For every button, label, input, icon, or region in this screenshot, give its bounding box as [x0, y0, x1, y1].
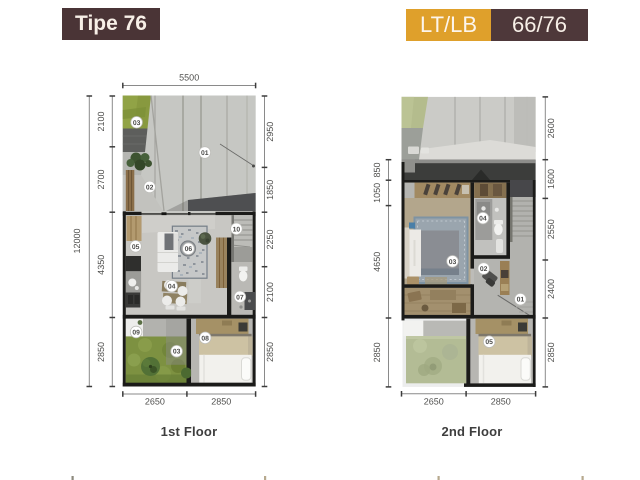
- svg-text:12000: 12000: [72, 228, 82, 253]
- svg-text:03: 03: [133, 120, 141, 127]
- svg-text:01: 01: [517, 297, 525, 304]
- svg-text:2850: 2850: [211, 397, 231, 407]
- svg-text:1600: 1600: [546, 169, 556, 189]
- svg-text:5500: 5500: [179, 73, 199, 83]
- svg-text:1050: 1050: [372, 183, 382, 203]
- svg-text:4650: 4650: [372, 252, 382, 272]
- svg-text:2400: 2400: [546, 279, 556, 299]
- svg-text:2850: 2850: [265, 342, 275, 362]
- svg-text:2650: 2650: [145, 397, 165, 407]
- svg-text:10: 10: [233, 226, 241, 233]
- svg-text:2600: 2600: [546, 118, 556, 138]
- svg-text:850: 850: [372, 162, 382, 177]
- svg-text:4350: 4350: [96, 255, 106, 275]
- svg-text:01: 01: [201, 150, 209, 157]
- svg-text:05: 05: [132, 244, 140, 251]
- svg-text:1850: 1850: [265, 180, 275, 200]
- svg-text:07: 07: [236, 294, 244, 301]
- svg-text:2650: 2650: [424, 396, 444, 406]
- svg-text:05: 05: [485, 339, 493, 346]
- svg-text:2850: 2850: [546, 342, 556, 362]
- svg-text:2850: 2850: [372, 342, 382, 362]
- svg-text:08: 08: [201, 335, 209, 342]
- svg-text:06: 06: [185, 246, 193, 253]
- svg-text:2700: 2700: [96, 169, 106, 189]
- svg-text:03: 03: [173, 349, 181, 356]
- svg-text:2100: 2100: [265, 282, 275, 302]
- svg-text:2850: 2850: [491, 396, 511, 406]
- svg-text:2550: 2550: [546, 219, 556, 239]
- svg-text:02: 02: [480, 266, 488, 273]
- svg-text:2250: 2250: [265, 229, 275, 249]
- svg-text:2100: 2100: [96, 111, 106, 131]
- svg-text:2850: 2850: [96, 342, 106, 362]
- svg-text:09: 09: [132, 330, 140, 337]
- svg-text:02: 02: [146, 184, 154, 191]
- svg-text:04: 04: [479, 216, 487, 223]
- svg-text:04: 04: [168, 284, 176, 291]
- svg-text:2950: 2950: [265, 122, 275, 142]
- svg-text:03: 03: [449, 259, 457, 266]
